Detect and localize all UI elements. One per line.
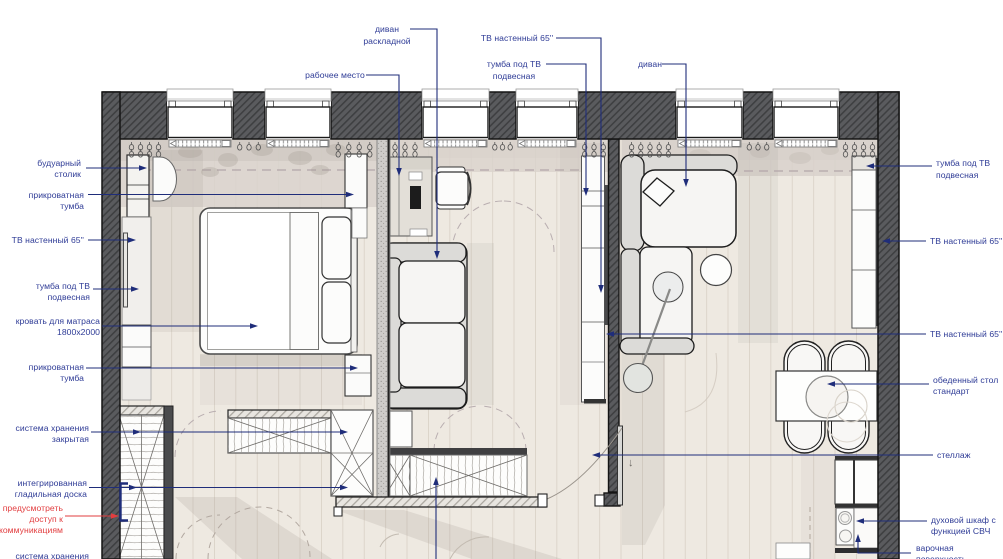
svg-text:обеденный стол: обеденный стол [933,375,998,385]
svg-text:прикроватная: прикроватная [29,362,85,372]
svg-text:подвесная: подвесная [493,71,536,81]
svg-text:прикроватная: прикроватная [29,190,85,200]
svg-text:интегрированная: интегрированная [18,478,88,488]
svg-text:духовой шкаф с: духовой шкаф с [931,515,996,525]
svg-text:стандарт: стандарт [933,386,969,396]
svg-text:система хранения: система хранения [16,551,90,559]
svg-text:система хранения: система хранения [16,423,90,433]
svg-text:раскладной: раскладной [363,36,410,46]
svg-text:варочная: варочная [916,543,954,553]
svg-text:кровать для матраса: кровать для матраса [16,316,100,326]
svg-text:поверхность: поверхность [916,554,967,559]
svg-text:функцией СВЧ: функцией СВЧ [931,526,991,536]
svg-text:гладильная доска: гладильная доска [15,489,87,499]
svg-text:коммуникациям: коммуникациям [0,525,63,535]
svg-text:ТВ настенный 65'': ТВ настенный 65'' [481,33,554,43]
svg-text:столик: столик [54,169,81,179]
svg-text:ТВ настенный 65'': ТВ настенный 65'' [930,236,1003,246]
svg-text:доступ к: доступ к [29,514,63,524]
svg-text:предусмотреть: предусмотреть [3,503,64,513]
svg-text:подвесная: подвесная [936,170,979,180]
svg-text:диван: диван [375,24,399,34]
svg-text:подвесная: подвесная [48,292,91,302]
svg-text:тумба под ТВ: тумба под ТВ [487,59,541,69]
svg-text:тумба: тумба [60,201,84,211]
svg-text:1800х2000: 1800х2000 [57,327,100,337]
svg-text:будуарный: будуарный [37,158,81,168]
svg-text:рабочее место: рабочее место [305,70,365,80]
svg-text:тумба под ТВ: тумба под ТВ [936,158,990,168]
svg-text:ТВ настенный 65'': ТВ настенный 65'' [930,329,1003,339]
svg-text:диван: диван [638,59,662,69]
svg-text:ТВ настенный 65'': ТВ настенный 65'' [12,235,85,245]
svg-text:тумба под ТВ: тумба под ТВ [36,281,90,291]
svg-text:тумба: тумба [60,373,84,383]
svg-text:закрытая: закрытая [52,434,89,444]
svg-text:↓: ↓ [628,457,634,469]
svg-text:стеллаж: стеллаж [937,450,971,460]
